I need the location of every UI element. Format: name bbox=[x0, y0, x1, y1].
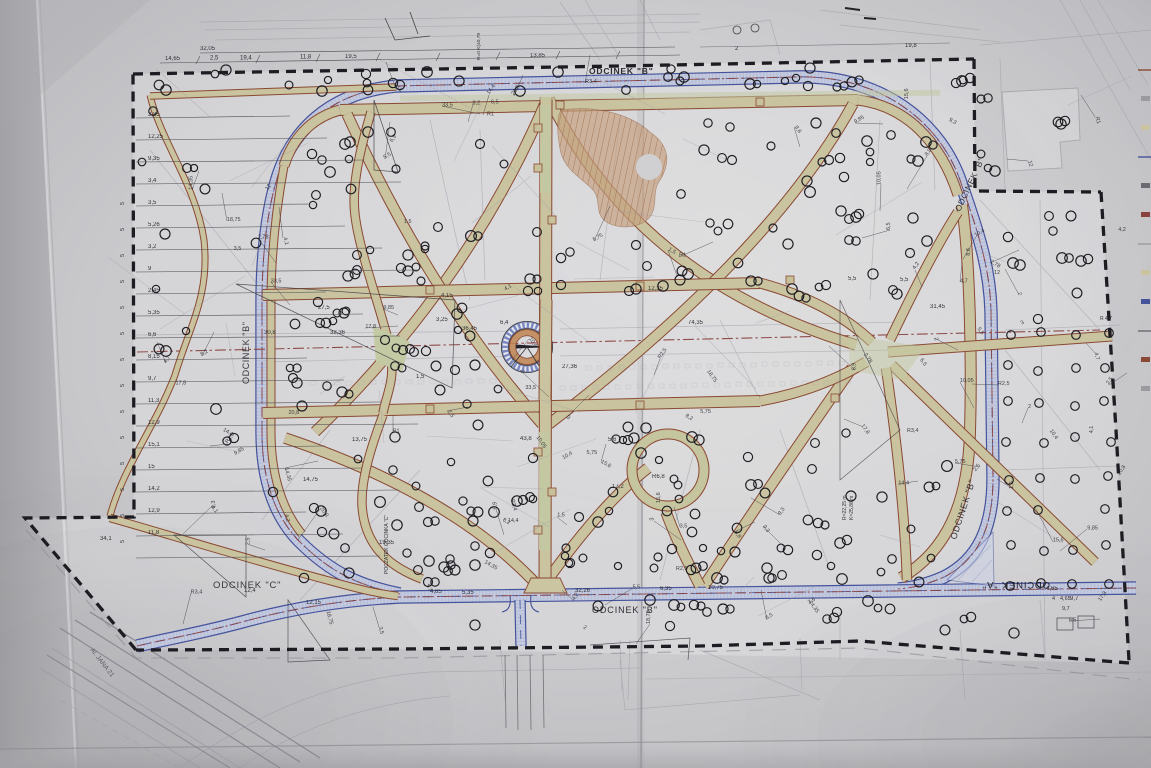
svg-text:5,35: 5,35 bbox=[462, 590, 474, 596]
svg-text:3: 3 bbox=[650, 518, 656, 521]
svg-text:K=25,86 m: K=25,86 m bbox=[849, 496, 855, 520]
svg-text:5: 5 bbox=[120, 202, 126, 205]
svg-text:3,2: 3,2 bbox=[148, 244, 157, 250]
svg-text:3,5: 3,5 bbox=[148, 200, 157, 206]
svg-text:14,4: 14,4 bbox=[898, 480, 909, 486]
svg-text:6,9: 6,9 bbox=[851, 363, 857, 371]
svg-text:33,5: 33,5 bbox=[525, 385, 536, 391]
svg-text:12: 12 bbox=[994, 270, 1000, 276]
svg-text:5: 5 bbox=[120, 410, 126, 413]
svg-text:5: 5 bbox=[120, 540, 126, 543]
svg-text:6,5: 6,5 bbox=[491, 99, 499, 105]
svg-text:R3,4: R3,4 bbox=[907, 428, 919, 434]
svg-text:9,85: 9,85 bbox=[1087, 525, 1098, 531]
svg-text:R6,8: R6,8 bbox=[652, 474, 665, 480]
svg-text:11,3: 11,3 bbox=[148, 398, 160, 404]
svg-text:17,8: 17,8 bbox=[175, 381, 186, 387]
svg-text:15,1: 15,1 bbox=[148, 442, 160, 448]
svg-text:19,4: 19,4 bbox=[240, 55, 252, 61]
svg-text:5: 5 bbox=[120, 488, 126, 491]
svg-text:2,78: 2,78 bbox=[258, 234, 269, 240]
svg-text:R=22,25 m: R=22,25 m bbox=[842, 495, 848, 520]
svg-text:1,5: 1,5 bbox=[557, 513, 565, 519]
svg-text:15,6: 15,6 bbox=[1053, 538, 1064, 544]
svg-text:15,6: 15,6 bbox=[656, 492, 662, 503]
svg-text:12,9: 12,9 bbox=[148, 420, 160, 426]
svg-text:6,5: 6,5 bbox=[886, 222, 892, 230]
svg-text:10,05: 10,05 bbox=[877, 171, 883, 185]
svg-text:19,5: 19,5 bbox=[345, 54, 357, 60]
svg-text:5,5: 5,5 bbox=[900, 277, 909, 283]
svg-text:43,8: 43,8 bbox=[520, 436, 532, 442]
svg-text:ODCINEK "B": ODCINEK "B" bbox=[589, 66, 654, 76]
svg-text:2,5: 2,5 bbox=[210, 56, 219, 62]
svg-text:9,7: 9,7 bbox=[148, 376, 157, 382]
svg-text:6,6: 6,6 bbox=[148, 332, 157, 338]
svg-text:33,5: 33,5 bbox=[271, 278, 282, 284]
svg-text:R2,5: R2,5 bbox=[998, 381, 1010, 387]
svg-text:3,85: 3,85 bbox=[148, 112, 160, 118]
svg-text:14,65: 14,65 bbox=[165, 56, 181, 62]
svg-text:18,75: 18,75 bbox=[227, 217, 241, 223]
svg-text:R1: R1 bbox=[679, 253, 686, 259]
svg-text:5,75: 5,75 bbox=[700, 409, 711, 415]
svg-text:R 4,7: R 4,7 bbox=[1100, 316, 1112, 322]
svg-text:2,45: 2,45 bbox=[148, 288, 160, 294]
svg-text:1,5: 1,5 bbox=[1009, 481, 1015, 489]
svg-text:ODCINEK "C": ODCINEK "C" bbox=[213, 580, 281, 591]
svg-text:4,1: 4,1 bbox=[1089, 426, 1095, 434]
svg-text:9,35: 9,35 bbox=[148, 156, 160, 162]
svg-text:POCZATEK ODCINKA "C": POCZATEK ODCINKA "C" bbox=[384, 515, 390, 574]
svg-text:32,26: 32,26 bbox=[575, 588, 591, 594]
svg-text:13,85: 13,85 bbox=[530, 53, 546, 59]
svg-text:4,7: 4,7 bbox=[960, 278, 968, 284]
svg-text:4,15: 4,15 bbox=[441, 293, 453, 299]
svg-text:R3,4: R3,4 bbox=[191, 589, 203, 595]
svg-text:15: 15 bbox=[148, 464, 155, 470]
svg-text:19,8: 19,8 bbox=[905, 43, 917, 49]
svg-text:5: 5 bbox=[120, 306, 126, 309]
svg-text:6,9: 6,9 bbox=[492, 502, 498, 510]
svg-text:5: 5 bbox=[120, 228, 126, 231]
svg-text:6,35: 6,35 bbox=[660, 586, 672, 592]
svg-text:ODCINEK "A": ODCINEK "A" bbox=[982, 579, 1050, 590]
svg-text:5,5: 5,5 bbox=[633, 584, 641, 590]
svg-text:12,9: 12,9 bbox=[148, 508, 160, 514]
svg-text:36,45: 36,45 bbox=[462, 326, 478, 332]
svg-text:1,5: 1,5 bbox=[416, 374, 425, 380]
svg-text:ODCINEK "B": ODCINEK "B" bbox=[592, 605, 658, 615]
svg-text:9,7: 9,7 bbox=[1062, 606, 1070, 612]
svg-text:8,15: 8,15 bbox=[148, 354, 160, 360]
svg-text:10,75: 10,75 bbox=[708, 585, 724, 591]
svg-text:5: 5 bbox=[120, 384, 126, 387]
svg-text:9,7: 9,7 bbox=[1070, 596, 1079, 602]
svg-text:27,36: 27,36 bbox=[562, 364, 578, 370]
svg-text:9,3: 9,3 bbox=[211, 501, 217, 509]
svg-text:3,5: 3,5 bbox=[234, 246, 242, 252]
svg-text:5: 5 bbox=[120, 332, 126, 335]
svg-text:5: 5 bbox=[120, 462, 126, 465]
svg-text:14,4: 14,4 bbox=[508, 518, 519, 524]
svg-text:12,25: 12,25 bbox=[148, 134, 164, 140]
svg-text:74,35: 74,35 bbox=[688, 320, 704, 326]
svg-text:10,05: 10,05 bbox=[960, 378, 974, 384]
svg-text:17,2: 17,2 bbox=[612, 484, 624, 490]
svg-text:ODCINEK "B": ODCINEK "B" bbox=[241, 322, 251, 385]
svg-text:5,75: 5,75 bbox=[955, 459, 966, 465]
svg-text:5: 5 bbox=[120, 436, 126, 439]
svg-text:5: 5 bbox=[120, 358, 126, 361]
svg-text:30,8: 30,8 bbox=[264, 330, 276, 336]
svg-text:3,25: 3,25 bbox=[436, 317, 448, 323]
svg-text:27,5: 27,5 bbox=[318, 305, 330, 311]
svg-text:20,8: 20,8 bbox=[288, 410, 299, 416]
svg-text:4: 4 bbox=[1052, 596, 1055, 602]
svg-text:R=0 K(40,79: R=0 K(40,79 bbox=[476, 33, 482, 60]
svg-text:31,45: 31,45 bbox=[930, 304, 946, 310]
svg-text:4,2: 4,2 bbox=[1118, 227, 1126, 233]
svg-text:33,5: 33,5 bbox=[442, 102, 453, 108]
svg-text:2: 2 bbox=[1028, 404, 1031, 410]
svg-text:5: 5 bbox=[120, 254, 126, 257]
svg-text:1,5: 1,5 bbox=[404, 219, 412, 225]
svg-text:14,2: 14,2 bbox=[148, 486, 160, 492]
svg-text:R3,4: R3,4 bbox=[585, 79, 597, 85]
svg-text:3,5: 3,5 bbox=[680, 523, 688, 529]
svg-text:8,2: 8,2 bbox=[473, 100, 481, 106]
svg-text:5,6: 5,6 bbox=[608, 437, 617, 443]
svg-text:2,5: 2,5 bbox=[246, 538, 252, 546]
svg-text:5: 5 bbox=[120, 280, 126, 283]
svg-text:5,35: 5,35 bbox=[148, 310, 160, 316]
svg-text:11,8: 11,8 bbox=[300, 55, 312, 61]
svg-text:6,4: 6,4 bbox=[500, 320, 509, 326]
svg-text:5,75: 5,75 bbox=[586, 450, 597, 456]
svg-text:R2,5: R2,5 bbox=[676, 566, 688, 572]
svg-text:14,35: 14,35 bbox=[188, 176, 194, 190]
svg-text:14,75: 14,75 bbox=[303, 477, 319, 483]
svg-text:17,8: 17,8 bbox=[365, 324, 376, 330]
svg-text:12,15: 12,15 bbox=[306, 600, 322, 606]
svg-text:3,4: 3,4 bbox=[148, 178, 157, 184]
svg-text:5,26: 5,26 bbox=[148, 222, 160, 228]
svg-text:15,6: 15,6 bbox=[904, 88, 910, 99]
svg-text:5: 5 bbox=[120, 514, 126, 517]
svg-text:12,35: 12,35 bbox=[648, 286, 664, 292]
svg-text:11,8: 11,8 bbox=[148, 530, 160, 536]
svg-text:9,85: 9,85 bbox=[383, 305, 394, 311]
svg-text:5,5: 5,5 bbox=[848, 276, 857, 282]
svg-text:32,36: 32,36 bbox=[330, 330, 346, 336]
svg-text:13,75: 13,75 bbox=[352, 437, 368, 443]
svg-text:4,65: 4,65 bbox=[1060, 596, 1071, 602]
svg-text:32,05: 32,05 bbox=[200, 46, 216, 52]
svg-text:R1: R1 bbox=[487, 112, 494, 118]
svg-text:R1: R1 bbox=[393, 429, 400, 435]
svg-text:8,8: 8,8 bbox=[966, 248, 972, 256]
svg-text:34,1: 34,1 bbox=[100, 536, 112, 542]
